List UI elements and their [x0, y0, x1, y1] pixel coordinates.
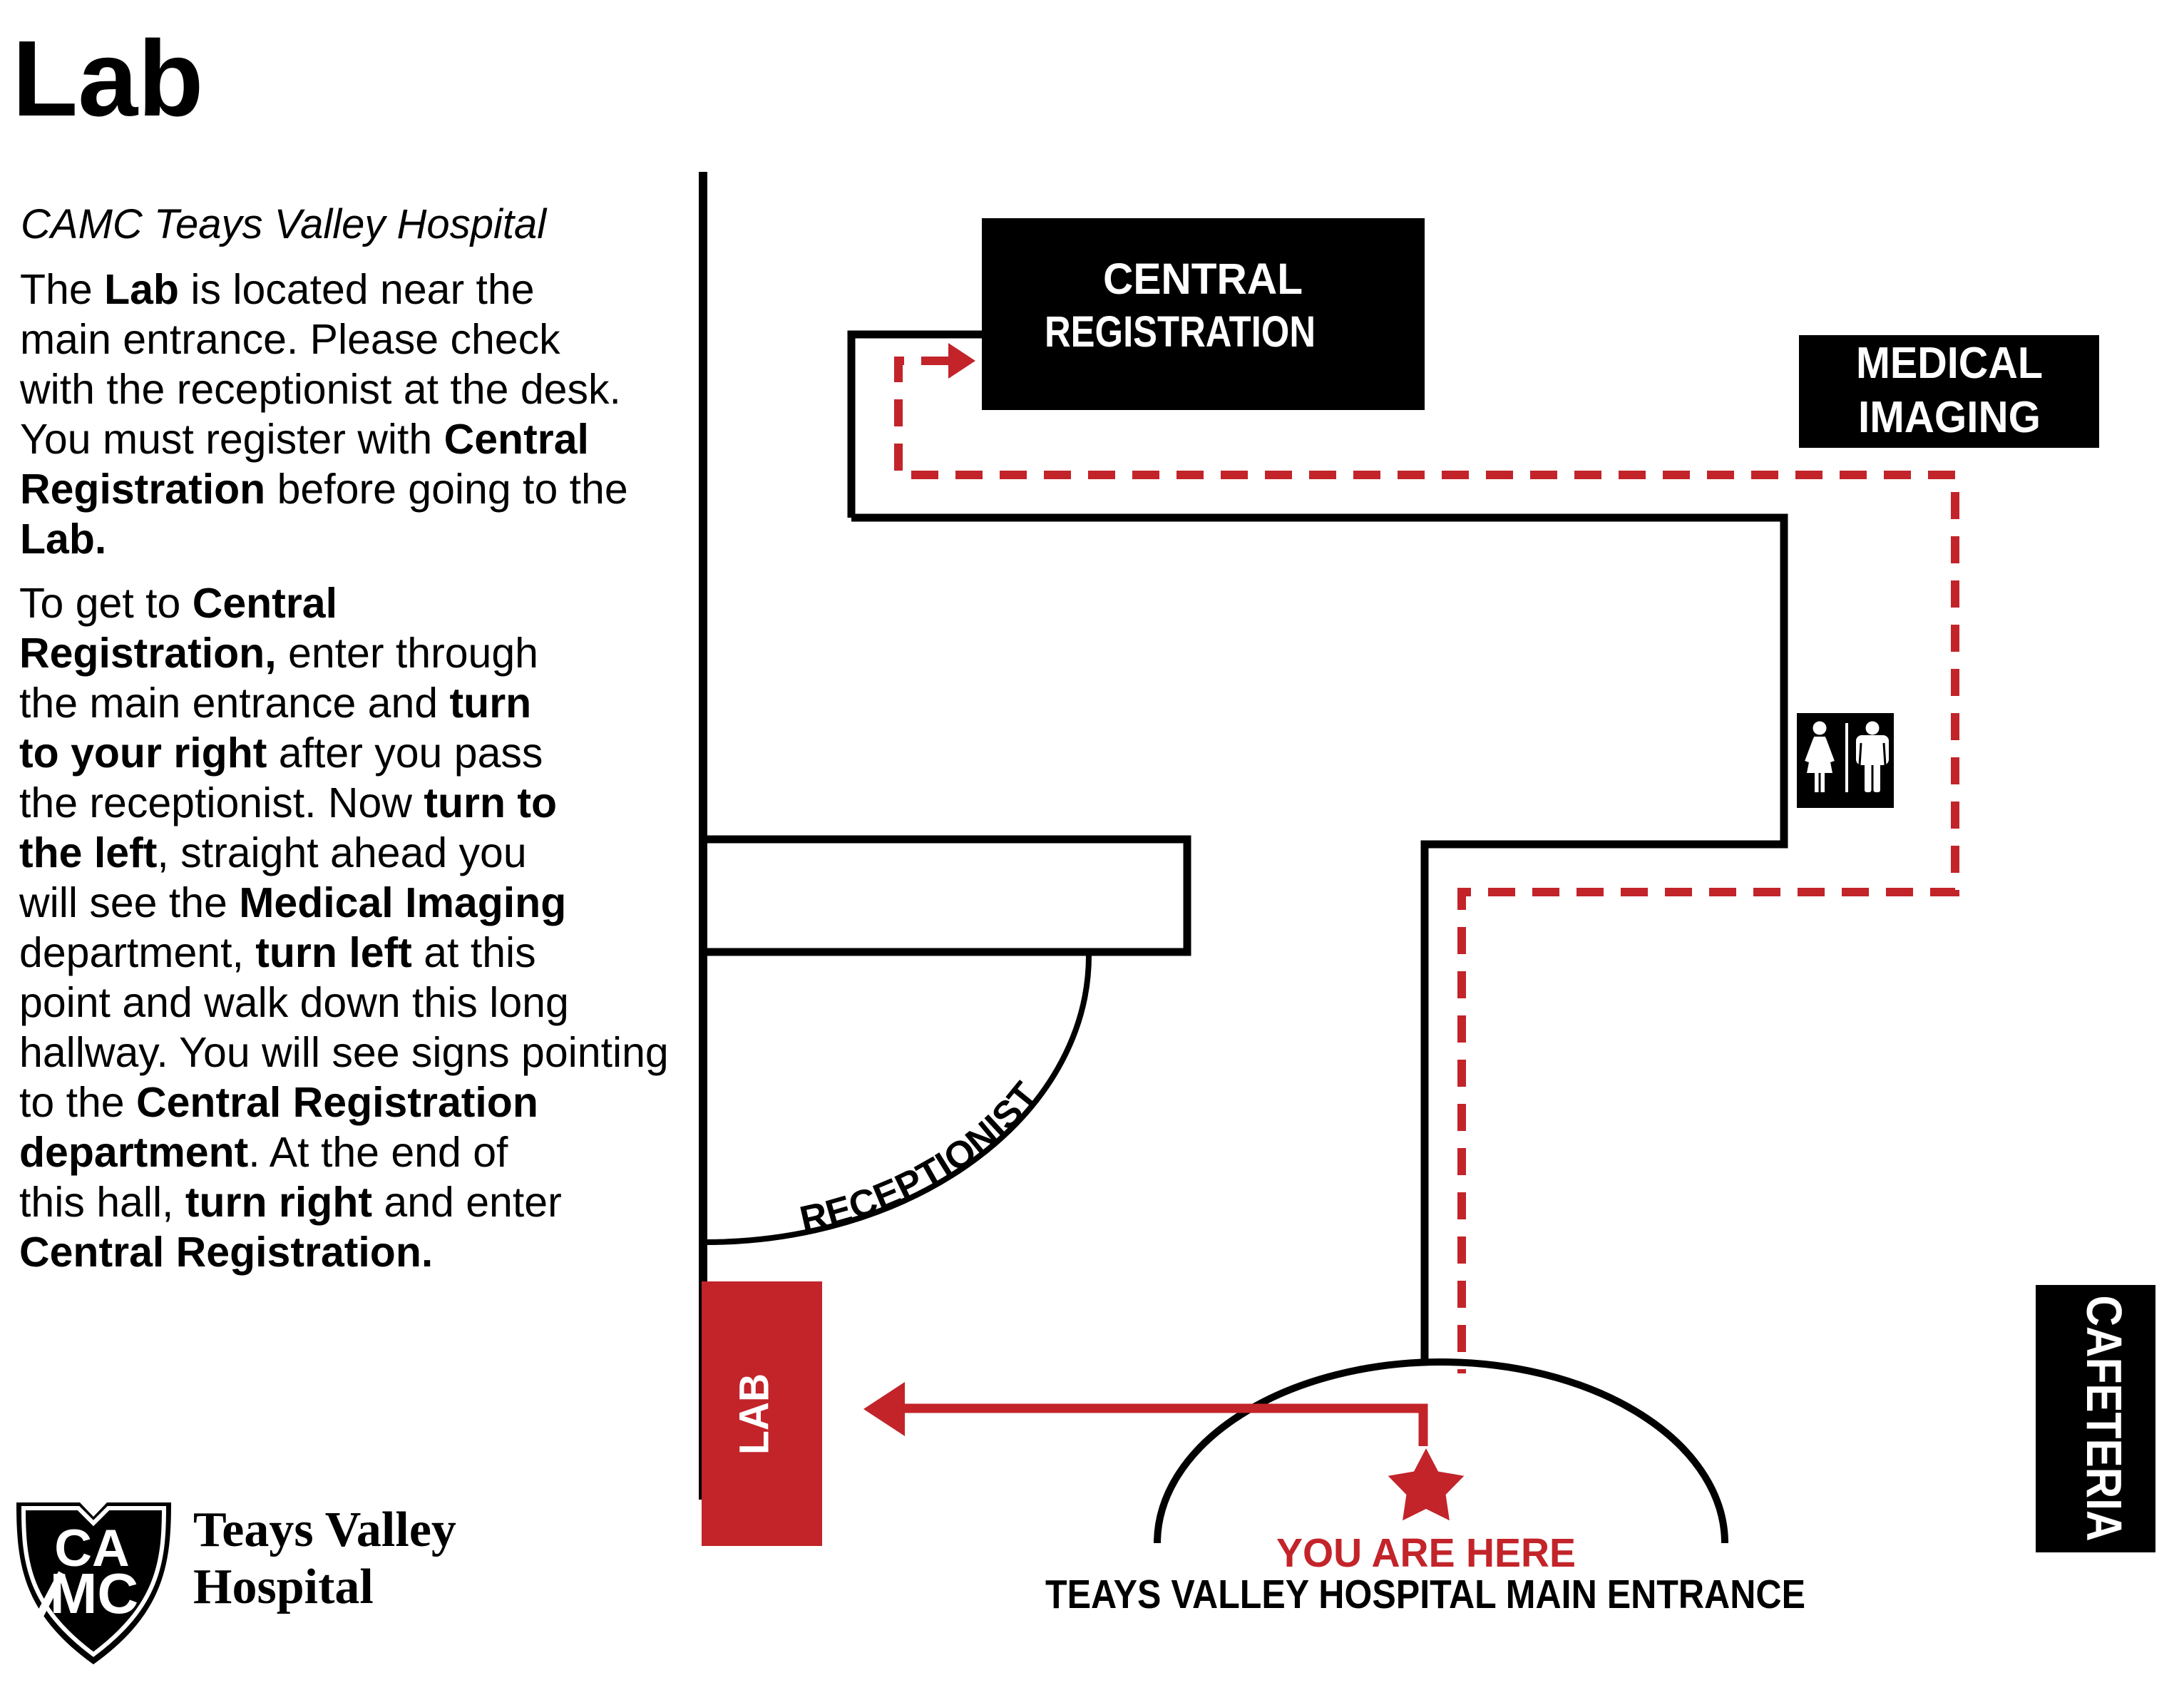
svg-text:MEDICAL: MEDICAL	[1856, 339, 2043, 388]
svg-text:LAB: LAB	[732, 1373, 778, 1455]
svg-text:YOU ARE HERE: YOU ARE HERE	[1276, 1530, 1576, 1576]
svg-text:CAFETERIA: CAFETERIA	[2076, 1296, 2132, 1542]
svg-text:CENTRAL: CENTRAL	[1103, 255, 1303, 303]
svg-text:Hospital: Hospital	[193, 1560, 374, 1614]
svg-text:REGISTRATION: REGISTRATION	[1045, 307, 1316, 356]
svg-text:TEAYS VALLEY HOSPITAL MAIN ENT: TEAYS VALLEY HOSPITAL MAIN ENTRANCE	[1045, 1572, 1805, 1617]
svg-text:Teays Valley: Teays Valley	[193, 1502, 456, 1557]
svg-text:MC: MC	[50, 1562, 138, 1625]
svg-text:IMAGING: IMAGING	[1858, 393, 2041, 442]
svg-text:RECEPTIONIST: RECEPTIONIST	[796, 1075, 1047, 1241]
